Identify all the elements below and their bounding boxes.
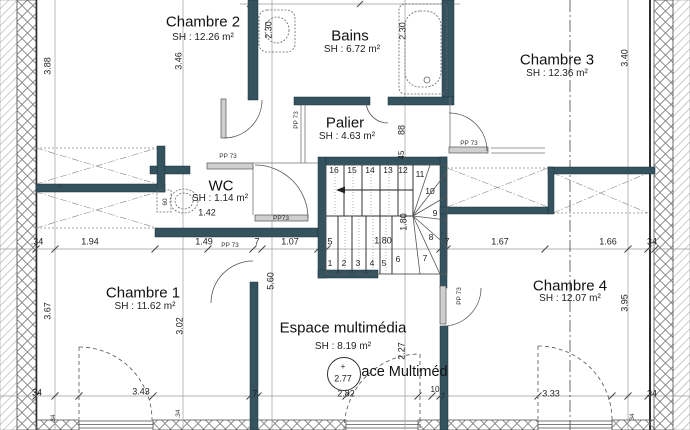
dim-label: 2.27 (398, 342, 407, 360)
dim-label: 7 (441, 393, 445, 401)
dim-label: 1.42 (198, 209, 216, 218)
room-area-chambre2: SH : 12.26 m² (172, 33, 234, 43)
dim-label: 34 (647, 390, 657, 399)
dim-label: 45 (398, 151, 406, 160)
stair-step-number: 8 (429, 233, 434, 242)
door-tag: PP 73 (221, 243, 239, 250)
room-area-chambre4: SH : 12.07 m² (539, 294, 601, 304)
stair-step-number: 1 (328, 259, 333, 268)
room-label-chambre1: Chambre 1 (106, 286, 180, 301)
stair-step-number: 12 (398, 166, 407, 175)
dim-label: 34 (32, 389, 42, 398)
stair-step-number: 13 (383, 166, 392, 175)
dim-label: 3.02 (176, 317, 185, 335)
room-label-palier: Palier (326, 116, 364, 131)
dim-label: 2.30 (265, 21, 274, 39)
door-tag: PP 73 (457, 287, 464, 305)
room-area-bains: SH : 6.72 m² (324, 45, 380, 55)
door-tag: PP73 (273, 216, 289, 223)
stair-step-number: 4 (370, 259, 375, 268)
stair-step-number: 5 (382, 259, 387, 268)
room-area-palier: SH : 4.63 m² (319, 132, 375, 142)
dim-label: 7 (444, 238, 449, 247)
dim-label: .34 (176, 409, 183, 418)
stair-step-number: 15 (347, 166, 356, 175)
walking-line-arrow (336, 187, 345, 194)
stair-step-number: 11 (416, 170, 425, 179)
dim-label: 7 (254, 238, 259, 247)
dim-label: 1.07 (281, 238, 299, 247)
door-tag: PP 73 (460, 141, 478, 148)
room-area-espace: SH : 8.19 m² (315, 342, 371, 352)
room-label-bains: Bains (331, 29, 369, 44)
floor-plan: Chambre 2 SH : 12.26 m² Bains SH : 6.72 … (0, 0, 690, 430)
bathtub (399, 4, 447, 94)
stair-step-number: 3 (356, 259, 361, 268)
dim-label: 3.33 (542, 390, 560, 399)
dim-label: 3.43 (132, 388, 150, 397)
room-area-chambre1: SH : 11.62 m² (115, 302, 176, 312)
dim-label: 3.95 (621, 294, 630, 312)
room-area-wc: SH : 1.14 m² (192, 194, 248, 204)
dim-label: .34 (31, 238, 44, 247)
stair-step-number: 7 (423, 254, 428, 263)
dim-label: 60 (163, 198, 170, 205)
room-label-chambre2: Chambre 2 (166, 15, 240, 30)
level-marker-sign: + (341, 363, 346, 371)
door-tag: PP 73 (294, 111, 301, 129)
dim-label: 3.46 (175, 52, 184, 70)
dim-label: 34 (647, 238, 657, 247)
room-label-chambre4: Chambre 4 (533, 279, 607, 294)
level-marker-value: 2.77 (334, 375, 352, 384)
dim-label: 5 (327, 238, 332, 247)
dim-label: 34 (630, 413, 637, 420)
dim-label: 7 (59, 184, 66, 188)
dim-label: 3.88 (44, 57, 53, 75)
dim-label: 1.67 (491, 238, 509, 247)
stair-step-number: 9 (433, 209, 438, 218)
room-area-chambre3: SH : 12.36 m² (526, 69, 588, 79)
dim-label: 1.66 (599, 238, 617, 247)
stair-step-number: 6 (396, 255, 401, 264)
dim-label: 5.60 (267, 272, 276, 290)
dim-label: 10 (431, 386, 440, 394)
dim-label: 2.30 (399, 22, 408, 40)
stair-step-number: 10 (425, 187, 434, 196)
door-tag: PP 73 (219, 154, 237, 161)
dim-label: 88 (398, 125, 407, 135)
dim-label: 1.80 (400, 213, 409, 231)
room-label-chambre3: Chambre 3 (520, 53, 594, 68)
stair-step-number: 14 (365, 166, 374, 175)
stair-step-number: 2 (342, 259, 347, 268)
dim-label: 3.40 (621, 49, 630, 67)
dim-label: 7 (252, 390, 257, 399)
room-label-espace: Espace multimédia (280, 321, 407, 336)
dim-label: .34 (51, 414, 58, 423)
stair-step-number: 16 (329, 166, 338, 175)
dim-label: 1.49 (195, 238, 213, 247)
dim-label: 3.67 (44, 302, 53, 320)
dim-label: 1.94 (81, 238, 99, 247)
room-label-wc: WC (209, 179, 234, 194)
dim-label: 1.80 (374, 237, 392, 246)
